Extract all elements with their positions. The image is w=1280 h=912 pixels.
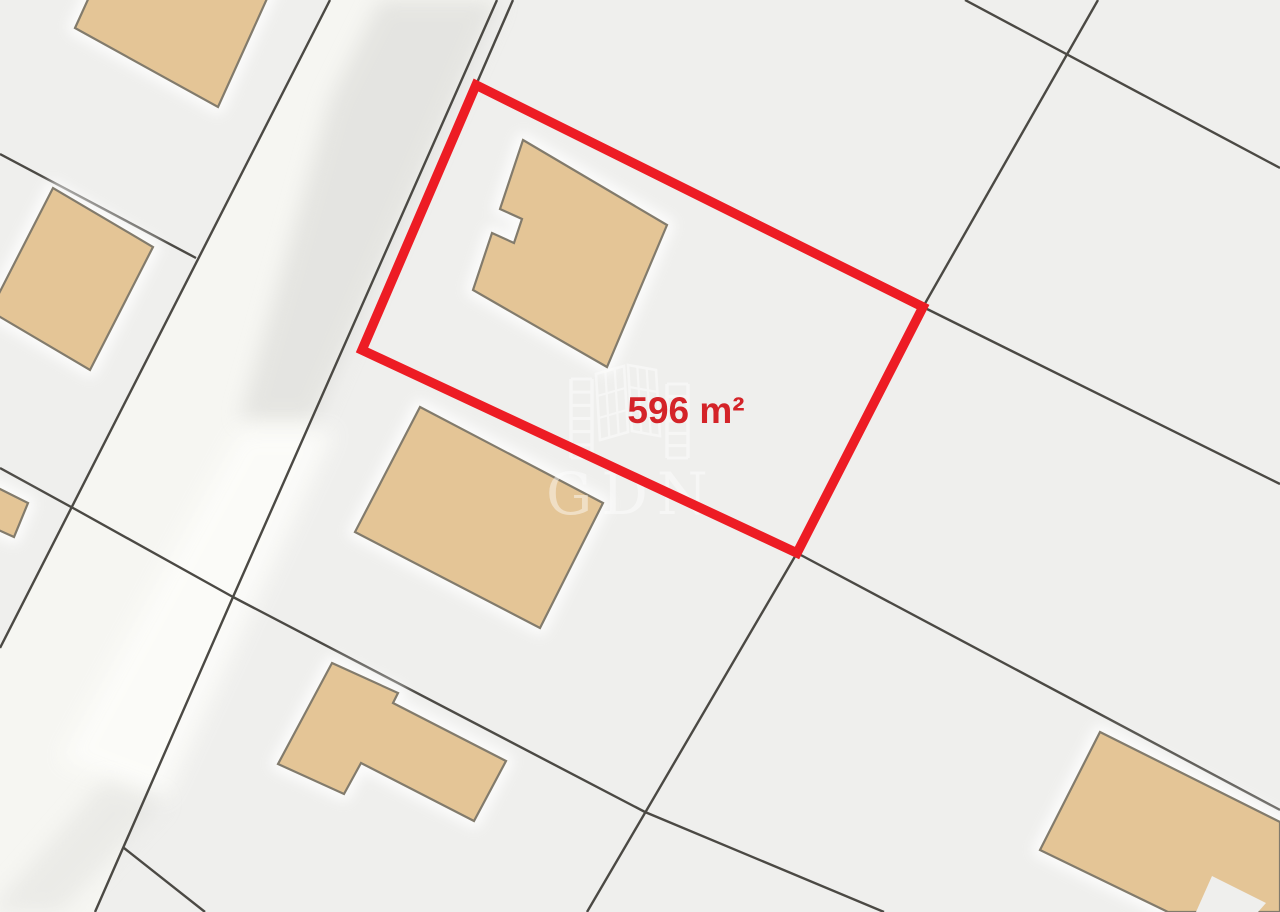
building-left-middle <box>0 188 153 370</box>
watermark-text: GDN <box>546 460 717 528</box>
parcel-boundary-line <box>587 553 797 912</box>
parcel-boundary-line <box>965 0 1280 168</box>
watermark-panel-grid <box>597 388 625 396</box>
area-label: 596 m² <box>627 390 744 431</box>
parcel-boundary-line <box>124 848 205 912</box>
cadastral-map-canvas: GDN 596 m² <box>0 0 1280 912</box>
cadastral-map: GDN 596 m² <box>0 0 1280 912</box>
building-main-house <box>473 140 667 367</box>
watermark-panel-grid <box>605 371 609 437</box>
watermark-panel <box>596 366 628 440</box>
parcel-boundary-line <box>923 0 1098 307</box>
parcel-boundary-line <box>797 553 1280 810</box>
watermark-panel-grid <box>599 410 627 418</box>
parcel-boundary-line <box>923 307 1280 484</box>
watermark-panel-grid <box>615 369 619 435</box>
